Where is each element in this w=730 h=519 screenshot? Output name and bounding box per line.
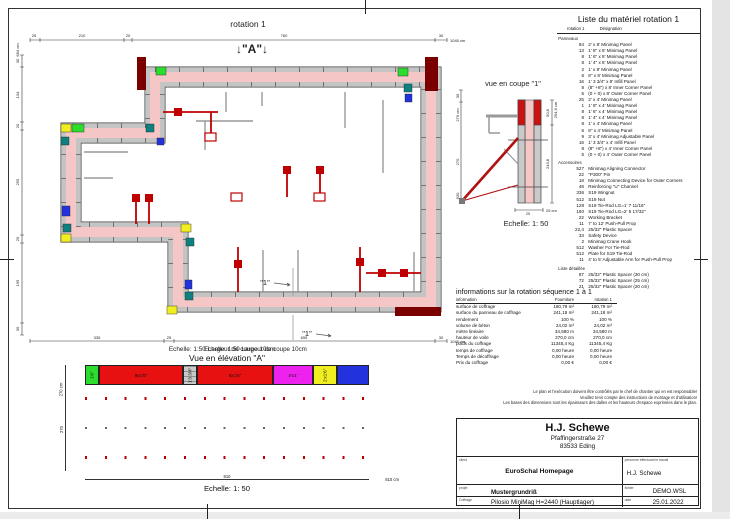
col-rotation: rotation 1 bbox=[567, 26, 584, 31]
rotation-info-table: informations sur la rotation séquence 1 … bbox=[456, 287, 617, 366]
worker-cell: personne effectuant le travail H.J. Sche… bbox=[622, 457, 698, 484]
material-qty: 5 bbox=[557, 152, 584, 158]
svg-text:25: 25 bbox=[167, 335, 172, 340]
elevation-top-panel: 1'6" bbox=[85, 365, 99, 385]
project-value: Mustergrundriß bbox=[491, 489, 537, 496]
material-designation: S19 Wingnut bbox=[588, 190, 614, 195]
tie-rod-row-bottom bbox=[85, 456, 369, 459]
material-designation: 8" x 4' Minimag Panel bbox=[588, 128, 632, 133]
svg-text:210: 210 bbox=[79, 33, 86, 38]
material-designation: 4' to 5' Adjustable Arm for Push-Pull Pr… bbox=[588, 257, 672, 262]
material-rows: Panneaux 84 2' x 8' Minimag Panel 13 1' … bbox=[557, 36, 700, 290]
file-cell: fichier DEMO.WSL bbox=[622, 485, 698, 496]
material-designation: 8" x 8' Minimag Panel bbox=[588, 73, 632, 78]
elevation-dim-bottom: 810 810 cm bbox=[85, 479, 369, 480]
material-designation: Minimag Connecting Device for Outer Corn… bbox=[588, 178, 682, 183]
material-designation: (8" +8") x 8' Inner Corner Panel bbox=[588, 85, 652, 90]
company-name: H.J. Schewe bbox=[457, 419, 698, 435]
svg-text:243,8: 243,8 bbox=[545, 158, 550, 169]
elevation-top-panel: 2'x1'6" bbox=[313, 365, 337, 385]
material-designation: Washer For Tie-Rod bbox=[588, 245, 629, 250]
elevation-scale: Echelle: 1: 50 bbox=[85, 484, 369, 493]
company-city: 83533 Eding bbox=[457, 443, 698, 451]
plan-title: rotation 1 bbox=[230, 19, 266, 29]
material-designation: 1' 8" x 8' Minimag Panel bbox=[588, 48, 637, 53]
material-designation: 1' 6" x 4' Minimag Panel bbox=[588, 109, 637, 114]
material-designation: 1' 3 3/4" x 8' Infill Panel bbox=[588, 79, 635, 84]
svg-text:20: 20 bbox=[126, 33, 131, 38]
disclaimer: Le plan et l'exécution doivent être cont… bbox=[455, 389, 697, 406]
svg-text:684 cm: 684 cm bbox=[15, 43, 20, 57]
project-cell: projet Mustergrundriß bbox=[457, 485, 622, 496]
svg-text:50,8: 50,8 bbox=[545, 108, 550, 117]
section-title: vue en coupe "1" bbox=[485, 79, 541, 88]
material-designation: 25/32" Plastic Spacer (25 cm) bbox=[588, 278, 649, 283]
svg-text:20: 20 bbox=[15, 123, 20, 128]
material-designation: 25/32" Plastic Spacer (30 cm) bbox=[588, 272, 649, 277]
col-designation: Désignation bbox=[600, 26, 622, 31]
svg-text:30: 30 bbox=[15, 326, 20, 331]
svg-text:20: 20 bbox=[15, 236, 20, 241]
material-designation: 1' 4" x 8' Minimag Panel bbox=[588, 60, 637, 65]
svg-text:30: 30 bbox=[439, 335, 444, 340]
title-block: H.J. Schewe Pfaffingerstraße 27 83533 Ed… bbox=[456, 418, 699, 506]
material-designation: 1' x 4' Minimag Panel bbox=[588, 121, 631, 126]
material-designation: Panneaux bbox=[558, 36, 578, 41]
material-designation: Liste détaillée bbox=[558, 266, 585, 271]
material-designation: S19 Nut bbox=[588, 197, 605, 202]
material-designation: 1' 8" x 4' Minimag Panel bbox=[588, 103, 637, 108]
info-title: informations sur la rotation séquence 1 … bbox=[456, 287, 617, 296]
material-designation: "P300" Pin bbox=[588, 172, 610, 177]
info-rows: surface de coffrage180,79 m²180,79 m² su… bbox=[456, 304, 617, 366]
material-designation: Reinforcing "U" Channel bbox=[588, 184, 637, 189]
formwork-cell: Coffrage Pilosio MiniMag H=2440 (Hauptla… bbox=[457, 497, 622, 507]
material-list: Liste du matériel rotation 1 rotation 1 … bbox=[557, 14, 700, 290]
elevation-top-panel bbox=[337, 365, 369, 385]
material-designation: S19 Tie-Rod LG=2' 5 17/32" bbox=[588, 209, 645, 214]
svg-text:270: 270 bbox=[455, 158, 460, 165]
svg-text:760: 760 bbox=[281, 33, 288, 38]
tie-rod-row-top bbox=[85, 397, 369, 400]
elevation-top-panel: 8x1'6" bbox=[197, 365, 273, 385]
elevation-dim-left: 270 cm 270 bbox=[65, 365, 66, 471]
section-scale: Echelle: 1: 50 bbox=[504, 219, 549, 228]
elevation-title: Vue en élévation "A" bbox=[85, 353, 369, 363]
elevation-top-panel: 1'3 3/4" bbox=[183, 365, 197, 385]
elevation-note: Echelle: 1:50 Largeur de coupe 10cm bbox=[85, 346, 426, 353]
material-designation: (0 + 0) x 4' Outer Corner Panel bbox=[588, 152, 651, 157]
material-designation: 1' 4" x 4' Minimag Panel bbox=[588, 115, 637, 120]
date-value: 25.01.2022 bbox=[653, 499, 684, 506]
material-row: 5 (0 + 0) x 4' Outer Corner Panel bbox=[557, 152, 700, 158]
material-designation: 2' x 4' Minimag Panel bbox=[588, 97, 631, 102]
plan-walls bbox=[71, 77, 431, 302]
material-designation: (8" +8") x 4' Inner Corner Panel bbox=[588, 146, 652, 151]
material-designation: 3' x 4' Minimag Adjustable Panel bbox=[588, 134, 654, 139]
svg-text:25: 25 bbox=[32, 33, 37, 38]
info-row: Prix du coffrage0,00 €0,00 € bbox=[456, 360, 617, 366]
svg-text:30: 30 bbox=[455, 93, 460, 98]
svg-text:30: 30 bbox=[15, 58, 20, 63]
svg-text:270 cm: 270 cm bbox=[455, 108, 460, 122]
section-marker-a: ↓"A"↓ bbox=[236, 42, 268, 56]
formwork-value: Pilosio MiniMag H=2440 (Hauptlager) bbox=[491, 499, 594, 506]
svg-text:1045 cm: 1045 cm bbox=[450, 38, 466, 43]
material-designation: Safety Device bbox=[588, 233, 616, 238]
info-label: Prix du coffrage bbox=[456, 360, 536, 366]
elevation-top-band: 1'6" 9x1'6" 1'3 3/4" 8x1'6" 4'x1' 2'x1'6… bbox=[85, 365, 369, 385]
material-designation: 7' to 12' Push-Pull Prop bbox=[588, 221, 636, 226]
info-rotation1: 0,00 € bbox=[574, 360, 612, 366]
material-list-header: rotation 1 Désignation bbox=[557, 25, 700, 34]
plan-walers bbox=[84, 92, 414, 292]
material-designation: (0 + 0) x 8' Outer Corner Panel bbox=[588, 91, 651, 96]
elevation-view: Echelle: 1:50 Largeur de coupe 10cm Vue … bbox=[85, 365, 369, 471]
material-qty: 11 bbox=[557, 257, 584, 263]
material-designation: Minimag Aligning Connector bbox=[588, 166, 645, 171]
material-row: 11 4' to 5' Adjustable Arm for Push-Pull… bbox=[557, 257, 700, 263]
info-header: informationFourniturerotation 1 bbox=[456, 297, 617, 304]
file-value: DEMO.WSL bbox=[653, 488, 687, 495]
material-designation: Plate for S19 Tie-Rod bbox=[588, 251, 632, 256]
material-designation: Accessoires bbox=[558, 160, 582, 165]
plan-dim-bottom: 335 25 655 30 1045 cm bbox=[30, 335, 466, 344]
svg-text:134: 134 bbox=[15, 91, 20, 98]
svg-text:25: 25 bbox=[526, 212, 530, 216]
material-designation: 1' 6" x 8' Minimag Panel bbox=[588, 54, 637, 59]
worker-value: H.J. Schewe bbox=[627, 470, 662, 477]
elevation-body bbox=[85, 385, 369, 471]
material-list-title: Liste du matériel rotation 1 bbox=[557, 14, 700, 25]
svg-text:30: 30 bbox=[439, 33, 444, 38]
tie-rod-row-mid bbox=[85, 427, 369, 429]
svg-text:335: 335 bbox=[94, 335, 101, 340]
svg-text:195: 195 bbox=[15, 279, 20, 286]
elevation-top-panel: 4'x1' bbox=[273, 365, 313, 385]
svg-text:25 cm: 25 cm bbox=[546, 208, 558, 213]
material-designation: Minimag Crane Hook bbox=[588, 239, 631, 244]
svg-text:"1": "1" bbox=[302, 329, 312, 338]
info-fourniture: 0,00 € bbox=[536, 360, 574, 366]
client-cell: client EuroSchal Homepage bbox=[457, 457, 622, 484]
company-block: H.J. Schewe Pfaffingerstraße 27 83533 Ed… bbox=[457, 419, 698, 456]
section-view: vue en coupe "1" 30 270 cm 270 630 294,6… bbox=[455, 79, 558, 228]
date-cell: date 25.01.2022 bbox=[622, 497, 698, 507]
elevation-top-panel: 9x1'6" bbox=[99, 365, 183, 385]
material-designation: Working Bracket bbox=[588, 215, 622, 220]
material-designation: 1' x 8' Minimag Panel bbox=[588, 67, 631, 72]
svg-text:"1": "1" bbox=[260, 278, 270, 287]
material-designation: 2' x 8' Minimag Panel bbox=[588, 42, 631, 47]
material-designation: 25/32" Plastic Spacer bbox=[588, 227, 632, 232]
material-designation: S19 Tie-Rod LG=1' 7 11/16" bbox=[588, 203, 645, 208]
material-designation: 1' 3 3/4" x 4' Infill Panel bbox=[588, 140, 635, 145]
plan-dim-left: 684 cm 30 134 20 255 20 195 30 bbox=[15, 43, 24, 335]
client-value: EuroSchal Homepage bbox=[457, 457, 622, 475]
svg-text:255: 255 bbox=[15, 178, 20, 185]
company-street: Pfaffingerstraße 27 bbox=[457, 435, 698, 443]
